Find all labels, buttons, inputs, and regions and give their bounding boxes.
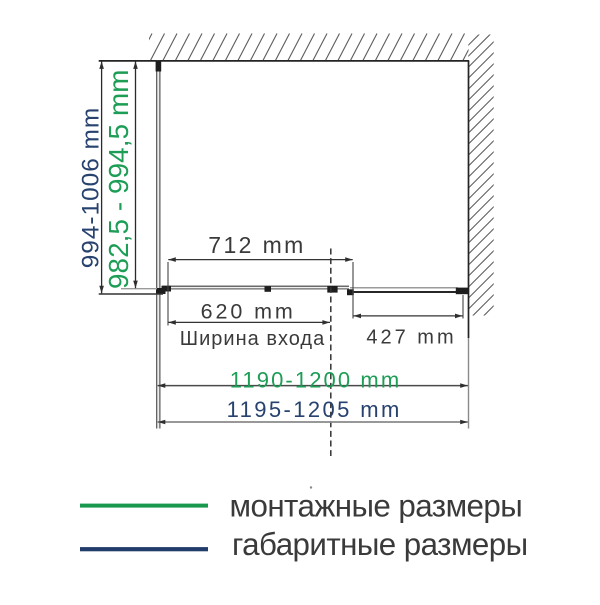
svg-text:994-1006 mm: 994-1006 mm [78,107,105,269]
svg-text:982,5 - 994,5 mm: 982,5 - 994,5 mm [103,70,134,289]
svg-text:427 mm: 427 mm [366,327,456,349]
svg-text:620 mm: 620 mm [201,300,296,324]
svg-text:1195-1205 mm: 1195-1205 mm [227,397,402,422]
svg-text:1190-1200 mm: 1190-1200 mm [230,367,402,392]
svg-text:Ширина входа: Ширина входа [180,328,325,350]
svg-text:монтажные размеры: монтажные размеры [230,489,523,524]
svg-text:712 mm: 712 mm [208,232,305,258]
svg-text:габаритные размеры: габаритные размеры [232,527,528,562]
